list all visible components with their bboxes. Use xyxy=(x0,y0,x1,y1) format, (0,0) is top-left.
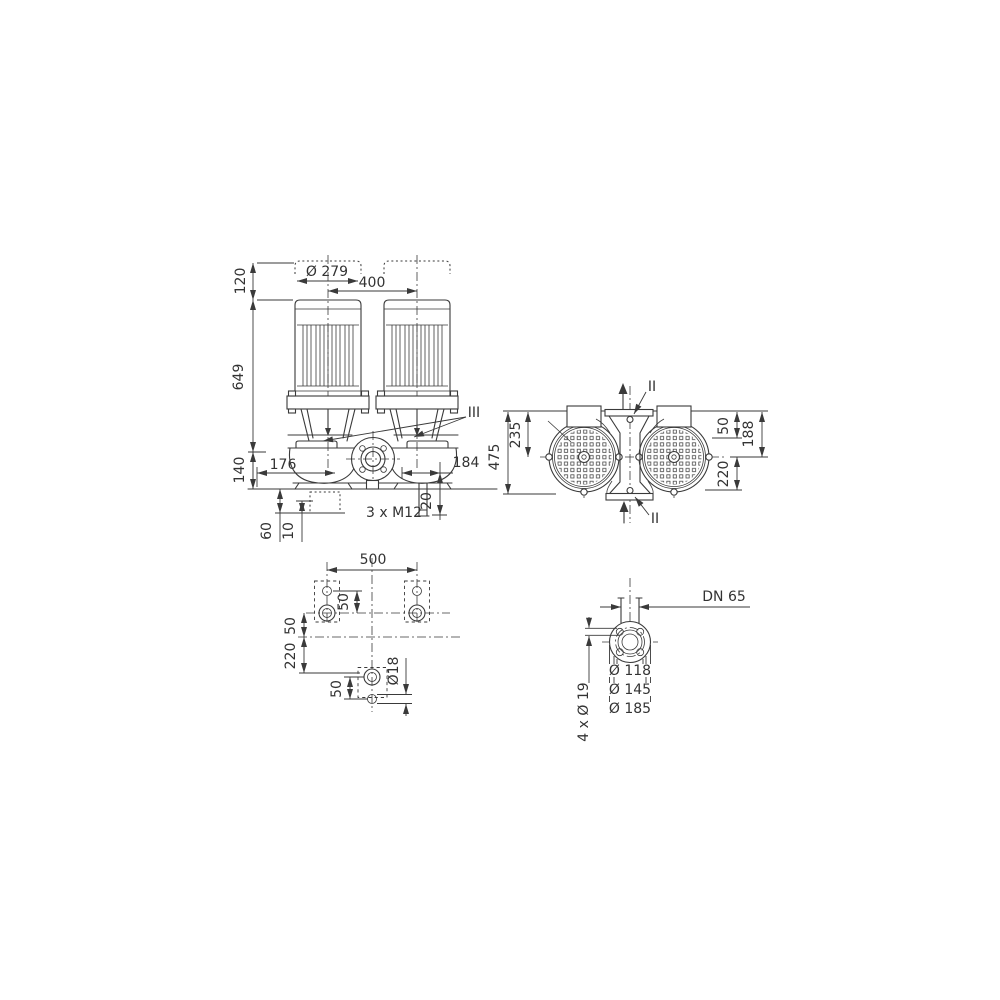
foot-pad-bottom xyxy=(358,668,387,698)
dim-120-label: 120 xyxy=(233,268,249,295)
dim-220-foundation-label: 220 xyxy=(283,643,299,670)
dim-118-label: Ø 118 xyxy=(609,663,651,679)
dim-4x19-label: 4 x Ø 19 xyxy=(576,682,592,741)
dim-50-label: 50 xyxy=(716,417,732,435)
front-view: 120 649 140 Ø 279 400 176 184 20 3 x M12… xyxy=(231,255,497,542)
fan-cover-right xyxy=(636,419,712,495)
motor-right xyxy=(376,300,458,441)
dim-50-pitch-label: 50 xyxy=(336,593,352,611)
dim-145-label: Ø 145 xyxy=(609,682,651,698)
dim-50-bottom-label: 50 xyxy=(329,680,345,698)
pump-dimensional-drawing: 120 649 140 Ø 279 400 176 184 20 3 x M12… xyxy=(0,0,1000,1000)
terminal-box-left xyxy=(567,406,601,427)
dim-dn65-label: DN 65 xyxy=(702,589,746,605)
dim-475-label: 475 xyxy=(487,444,503,471)
section-ii-top-label: II xyxy=(648,379,656,395)
dim-649-label: 649 xyxy=(231,364,247,391)
terminal-box-right xyxy=(657,406,691,427)
thread-spec-label: 3 x M12 xyxy=(366,505,422,521)
dim-18-label: Ø18 xyxy=(386,657,402,686)
dim-185-label: Ø 185 xyxy=(609,701,651,717)
dim-140-label: 140 xyxy=(232,457,248,484)
section-ii-bottom-label: II xyxy=(651,511,659,527)
dim-50-left-label: 50 xyxy=(283,617,299,635)
dashed-foundation-box xyxy=(310,492,340,513)
fan-cover-left xyxy=(546,419,622,495)
dim-235-label: 235 xyxy=(508,422,524,449)
section-iii-label: III xyxy=(468,405,480,421)
vent-plug-top xyxy=(627,417,633,423)
dim-60-label: 60 xyxy=(259,522,275,540)
dim-279-label: Ø 279 xyxy=(306,264,348,280)
dim-184-label: 184 xyxy=(453,455,480,471)
dim-500-label: 500 xyxy=(360,552,387,568)
dim-400-label: 400 xyxy=(359,275,386,291)
motor-left xyxy=(287,300,369,441)
dim-176-label: 176 xyxy=(270,457,297,473)
dim-188-label: 188 xyxy=(741,421,757,448)
technical-drawing-canvas: 120 649 140 Ø 279 400 176 184 20 3 x M12… xyxy=(0,0,1000,1000)
dim-220-label: 220 xyxy=(716,461,732,488)
flange-detail: DN 65 4 x Ø 19 Ø 118 Ø 145 Ø 185 xyxy=(576,578,750,742)
pump-casing xyxy=(248,431,497,516)
vent-plug-bottom xyxy=(627,488,633,494)
dim-10-label: 10 xyxy=(281,522,297,540)
foundation-plan: 500 50 50 220 50 Ø18 xyxy=(283,552,462,716)
top-view: II II 475 235 50 188 220 xyxy=(487,379,768,527)
